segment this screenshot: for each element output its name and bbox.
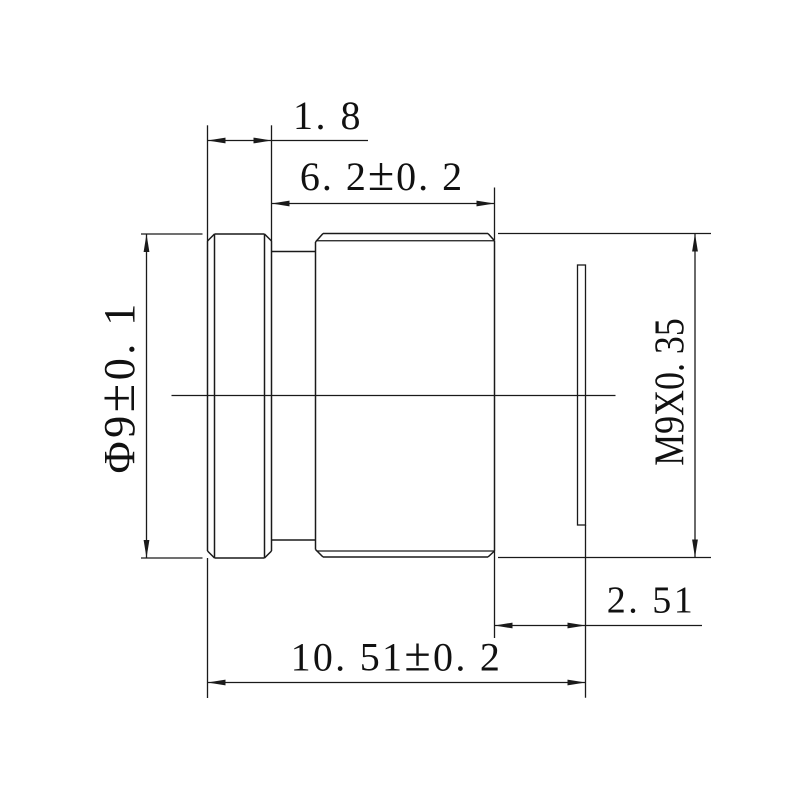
svg-text:Φ9±0. 1: Φ9±0. 1	[89, 300, 146, 473]
svg-text:10. 51±0. 2: 10. 51±0. 2	[291, 628, 503, 681]
svg-text:1. 8: 1. 8	[293, 93, 363, 138]
svg-text:M9X0. 35: M9X0. 35	[647, 318, 693, 466]
svg-text:6. 2±0. 2: 6. 2±0. 2	[300, 148, 464, 201]
svg-text:2. 51: 2. 51	[607, 580, 696, 622]
